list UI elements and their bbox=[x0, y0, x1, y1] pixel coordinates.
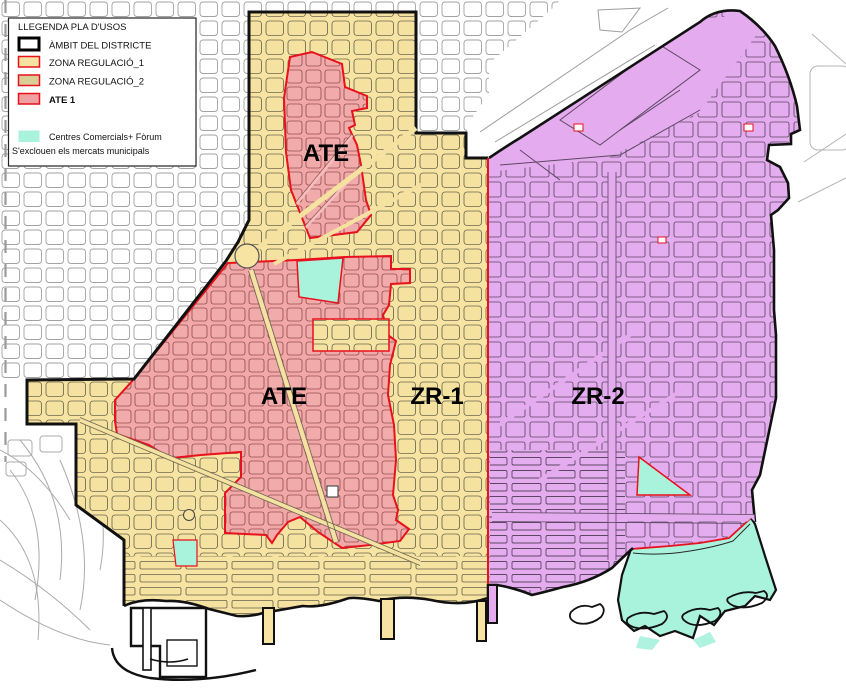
svg-text:ZR-2: ZR-2 bbox=[571, 383, 624, 410]
svg-text:ZONA REGULACIÓ_1: ZONA REGULACIÓ_1 bbox=[49, 58, 144, 69]
svg-text:ÀMBIT DEL DISTRICTE: ÀMBIT DEL DISTRICTE bbox=[49, 41, 151, 52]
svg-text:LLEGENDA PLA D'USOS: LLEGENDA PLA D'USOS bbox=[18, 22, 126, 33]
svg-text:ATE 1: ATE 1 bbox=[49, 95, 76, 106]
svg-text:ZR-1: ZR-1 bbox=[410, 383, 463, 410]
svg-text:ATE: ATE bbox=[303, 140, 349, 167]
svg-text:ATE: ATE bbox=[261, 383, 307, 410]
svg-text:S'exclouen els mercats municip: S'exclouen els mercats municipals bbox=[12, 146, 150, 156]
svg-text:Centres Comercials+ Fòrum: Centres Comercials+ Fòrum bbox=[49, 132, 162, 142]
svg-text:ZONA REGULACIÓ_2: ZONA REGULACIÓ_2 bbox=[49, 77, 144, 88]
